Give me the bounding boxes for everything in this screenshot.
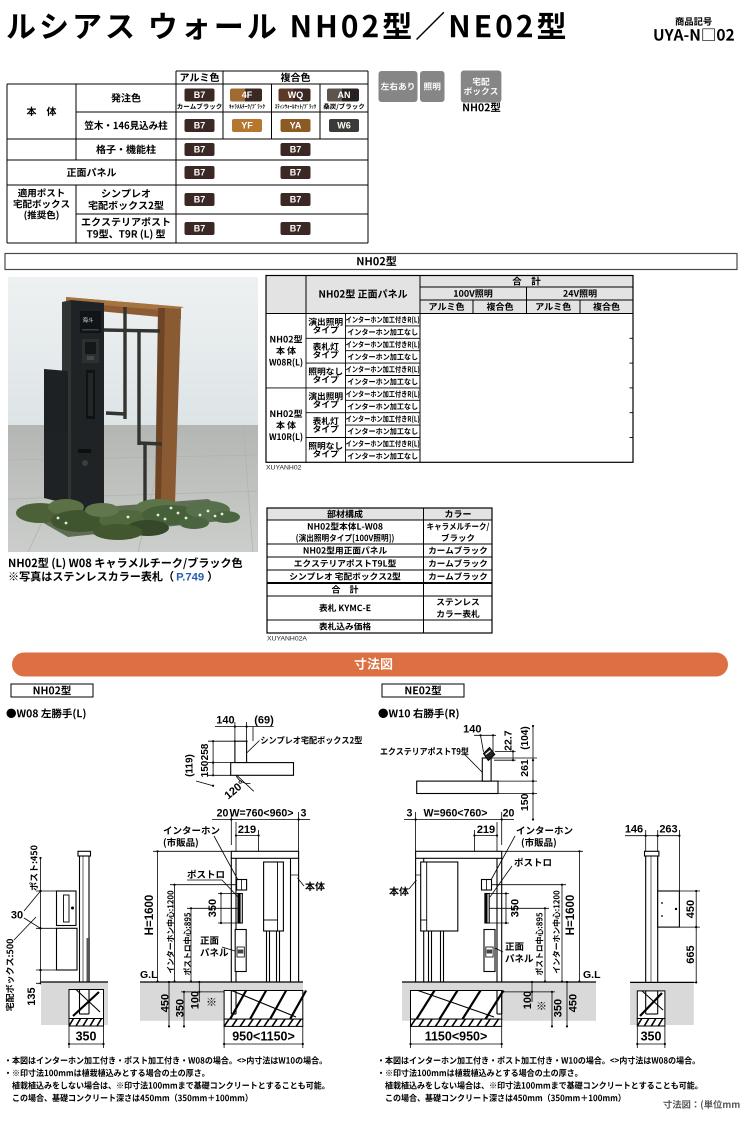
svg-text:950<1150>: 950<1150> xyxy=(232,1029,295,1043)
svg-text:H=1600: H=1600 xyxy=(144,895,156,936)
svg-text:350: 350 xyxy=(76,1029,97,1043)
svg-text:258: 258 xyxy=(200,743,211,760)
svg-text:XUYANH02: XUYANH02 xyxy=(266,464,302,471)
svg-text:20: 20 xyxy=(217,807,229,819)
svg-text:140: 140 xyxy=(463,723,481,735)
svg-text:B7: B7 xyxy=(194,90,206,100)
svg-text:30: 30 xyxy=(11,909,23,921)
svg-text:W=960<760>: W=960<760> xyxy=(424,807,488,819)
svg-text:YF: YF xyxy=(241,121,253,131)
svg-text:350: 350 xyxy=(641,1029,662,1043)
svg-text:450: 450 xyxy=(567,994,579,1012)
svg-text:261: 261 xyxy=(519,759,531,777)
svg-text:100: 100 xyxy=(190,991,202,1009)
svg-text:219: 219 xyxy=(477,824,495,836)
svg-text:YA: YA xyxy=(290,121,302,131)
svg-text:B7: B7 xyxy=(290,145,302,155)
svg-text:B7: B7 xyxy=(290,224,302,234)
svg-text:219: 219 xyxy=(238,824,256,836)
svg-text:100: 100 xyxy=(522,991,534,1009)
svg-text:1150<950>: 1150<950> xyxy=(425,1029,488,1043)
svg-text:AN: AN xyxy=(338,90,351,100)
svg-text:(69): (69) xyxy=(254,714,274,726)
svg-text:450: 450 xyxy=(159,994,171,1012)
svg-text:B7: B7 xyxy=(194,224,206,234)
svg-text:P.749: P.749 xyxy=(176,572,204,584)
svg-text:B7: B7 xyxy=(194,145,206,155)
svg-text:22.7: 22.7 xyxy=(503,730,515,751)
svg-text:B7: B7 xyxy=(290,195,302,205)
svg-text:G.L: G.L xyxy=(140,969,158,981)
svg-text:WQ: WQ xyxy=(288,90,304,100)
svg-text:150: 150 xyxy=(200,760,211,777)
svg-text:665: 665 xyxy=(685,945,697,963)
svg-text:B7: B7 xyxy=(194,121,206,131)
svg-text:20: 20 xyxy=(503,807,515,819)
svg-text:135: 135 xyxy=(26,987,38,1005)
svg-text:B7: B7 xyxy=(290,168,302,178)
svg-text:XUYANH02A: XUYANH02A xyxy=(267,635,307,642)
svg-text:B7: B7 xyxy=(194,195,206,205)
svg-text:140: 140 xyxy=(216,714,234,726)
svg-text:(104): (104) xyxy=(520,726,531,749)
svg-text:(119): (119) xyxy=(185,754,196,777)
svg-text:263: 263 xyxy=(659,823,677,835)
svg-text:3: 3 xyxy=(301,807,307,819)
svg-text:350: 350 xyxy=(552,999,564,1017)
svg-text:150: 150 xyxy=(519,793,531,811)
svg-text:W6: W6 xyxy=(337,121,351,131)
svg-text:W=760<960>: W=760<960> xyxy=(230,807,294,819)
svg-text:3: 3 xyxy=(407,807,413,819)
svg-text:350: 350 xyxy=(174,999,186,1017)
svg-text:450: 450 xyxy=(685,900,697,918)
svg-text:G.L: G.L xyxy=(583,969,601,981)
svg-text:H=1600: H=1600 xyxy=(565,895,577,936)
svg-text:B7: B7 xyxy=(194,168,206,178)
svg-text:146: 146 xyxy=(625,823,643,835)
svg-text:4F: 4F xyxy=(242,90,253,100)
